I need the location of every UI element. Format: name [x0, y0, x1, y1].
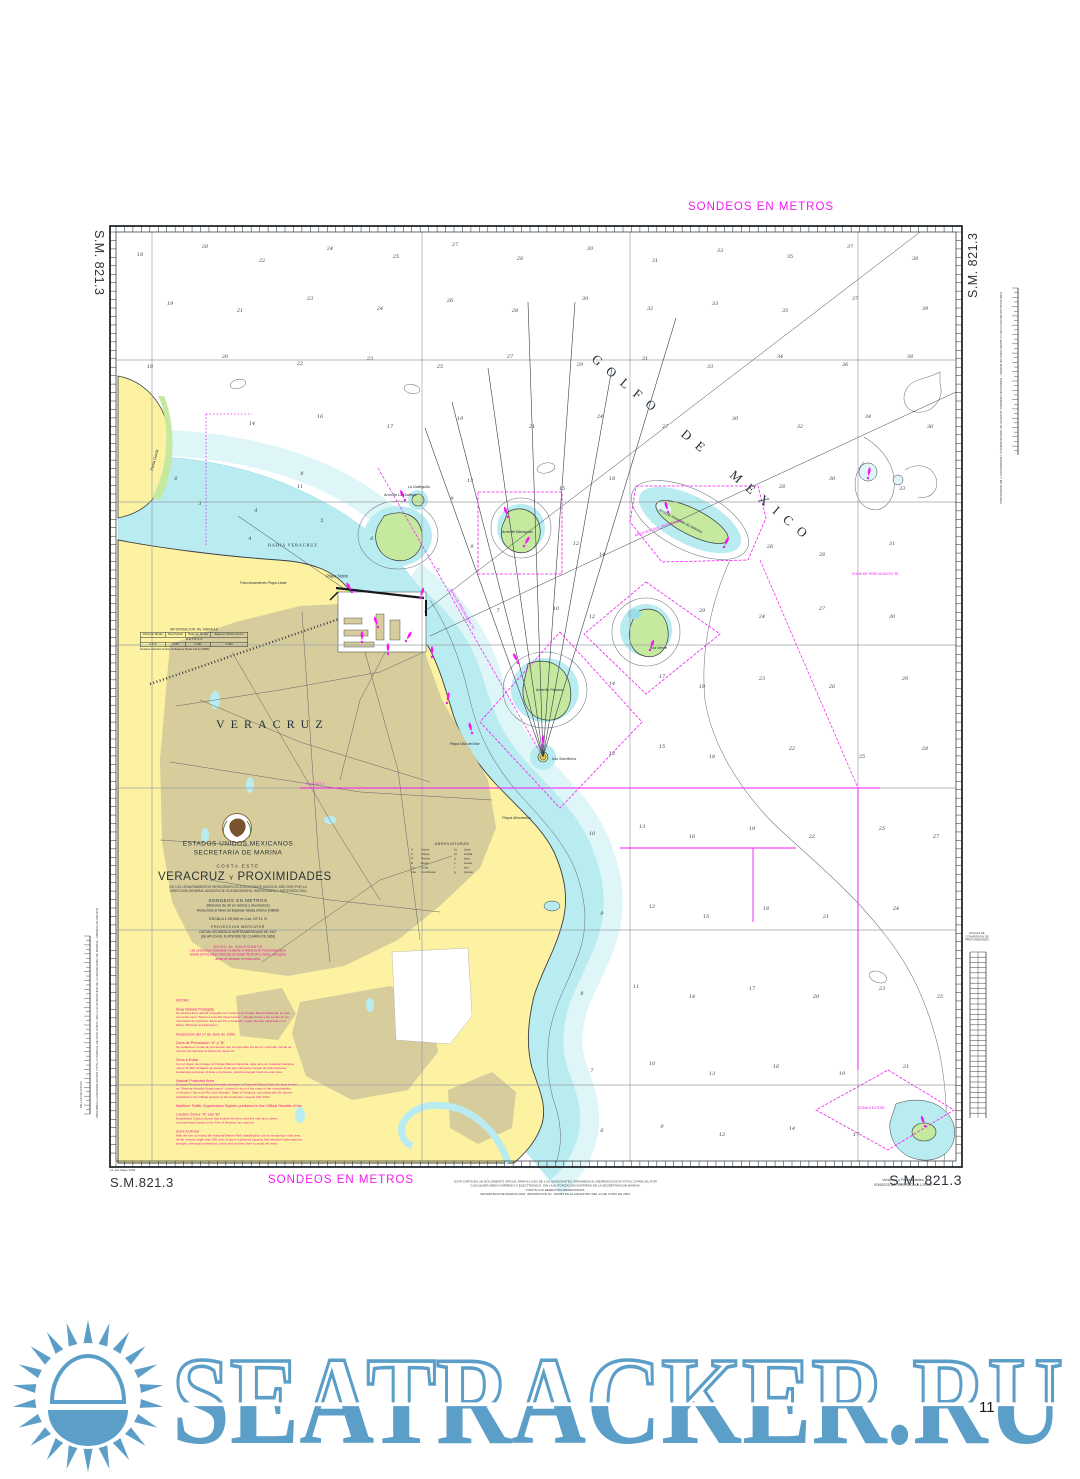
bottom-right-info: Veracruz y Proximidades SONDEOS-METROS E…: [828, 1178, 978, 1187]
title-region: COSTA ESTE: [158, 863, 318, 868]
sounding-value: 25: [878, 826, 885, 832]
sounding-value: 24: [892, 906, 899, 912]
sounding-value: 28: [516, 256, 523, 262]
abbreviations-columns: AArenaFFangoPPiedraRRocaCoCoralCtaConchu…: [411, 848, 493, 875]
map-label: La Galleguilla: [408, 485, 430, 489]
sounding-value: 36: [927, 424, 934, 430]
bottom-right-chart-scale: SONDEOS-METROS ESCALA 1:25,000: [828, 1183, 978, 1187]
sounding-value: 13: [639, 824, 645, 830]
sounding-value: 23: [878, 986, 885, 992]
sounding-value: 14: [789, 1126, 795, 1132]
map-label: S.M. 827.1: [306, 782, 324, 786]
note-heading: Federación del 17 de Julio de 1998.: [176, 1032, 331, 1036]
note-body-line: charges, chemical substances, toxics and…: [176, 1142, 331, 1146]
sounding-value: 16: [317, 414, 324, 420]
sounding-value: 16: [689, 834, 696, 840]
title-source-1: DE LOS LEVANTAMIENTOS HIDROGRAFICOS EJEC…: [158, 885, 318, 889]
map-label: Isla Sacrificios: [552, 757, 576, 761]
chart-page: 1820222425272830313335373819212324262830…: [0, 0, 1080, 1479]
sounding-value: 11: [297, 484, 303, 490]
map-label: ZONA A EVITAR: [858, 1106, 885, 1110]
chart-number-top-left: S.M. 821.3: [92, 230, 106, 295]
map-label: Fraccionamiento Playa Linda: [240, 581, 286, 585]
sounding-value: 15: [703, 914, 709, 920]
sounding-value: 8: [300, 471, 303, 477]
sounding-value: 25: [858, 754, 865, 760]
sounding-value: 32: [647, 306, 653, 312]
latitude-scale-title: MILLAS NAUTICAS: [80, 1018, 83, 1108]
sounding-value: 22: [788, 746, 795, 752]
sounding-value: 30: [829, 476, 836, 482]
sounding-value: 20: [698, 608, 706, 614]
sounding-value: 29: [901, 676, 909, 682]
sounding-value: 35: [787, 254, 793, 260]
abbrev-column: AArenaFFangoPPiedraRRocaCoCoralCtaConchu…: [411, 848, 450, 875]
sounding-value: 35: [782, 308, 788, 314]
harbor: [330, 588, 426, 652]
title-block: ESTADOS UNIDOS MEXICANOS SECRETARIA DE M…: [158, 840, 318, 961]
chart-title-rest: PROXIMIDADES: [237, 870, 331, 883]
map-label: Isla Verde: [650, 646, 667, 650]
sounding-value: 14: [599, 552, 605, 558]
sounding-value: 19: [839, 1071, 846, 1077]
sounding-value: 17: [749, 986, 756, 992]
sounding-value: 29: [576, 362, 584, 368]
map-label: Playa Norte: [326, 574, 348, 578]
tide-value-cell: 0.287: [165, 642, 185, 647]
tide-table: INFORMACION DE MAREAS Pleamar MediaNivel…: [140, 628, 248, 651]
sounding-value: 28: [511, 308, 518, 314]
sounding-value: 3: [198, 501, 201, 507]
title-projection: PROYECCION MERCATOR: [158, 925, 318, 929]
sounding-value: 31: [652, 258, 658, 264]
sounding-value: 21: [528, 424, 535, 430]
sounding-value: 20: [812, 994, 820, 1000]
sounding-value: 20: [201, 244, 209, 250]
sounding-value: 26: [828, 684, 836, 690]
sounding-value: 18: [763, 906, 769, 912]
sounding-value: 14: [249, 421, 255, 427]
note-body-line: recommended routes to the Port of Veracr…: [176, 1121, 331, 1125]
sondeos-title-bottom: SONDEOS EN METROS: [268, 1174, 414, 1187]
sounding-value: 24: [326, 246, 333, 252]
sounding-value: 39: [922, 306, 929, 312]
sounding-value: 32: [797, 424, 803, 430]
sounding-value: 25: [936, 994, 943, 1000]
sounding-value: 19: [749, 826, 756, 832]
right-margin-note: PUBLICADA EN MEXICO POR LA SECRETARIA DE…: [999, 292, 1002, 472]
title-datum-2: (SE APLICA EL ELIPSOIDE DE CLARKE DE 186…: [158, 935, 318, 939]
sounding-value: 33: [899, 486, 905, 492]
sounding-value: 19: [167, 301, 174, 307]
sounding-value: 14: [689, 994, 695, 1000]
sounding-value: 11: [633, 984, 639, 990]
sounding-value: 22: [258, 258, 265, 264]
sounding-value: 27: [818, 606, 826, 612]
sounding-value: 20: [221, 354, 229, 360]
sounding-value: 13: [709, 1071, 715, 1077]
sounding-value: 15: [559, 486, 565, 492]
chart-title-main: VERACRUZ: [158, 870, 225, 883]
title-source-2: DIRECCION GENERAL ADJUNTA DE OCEANOGRAFI…: [158, 890, 318, 894]
map-label: VERACRUZ: [216, 718, 329, 730]
tide-table-title: INFORMACION DE MAREAS: [140, 628, 248, 632]
sounding-value: 24: [596, 414, 603, 420]
map-label: Arrecife Pájaros: [536, 688, 563, 692]
sounding-value: 36: [842, 362, 849, 368]
note-body-line: published in the Official Gazette of the…: [176, 1095, 331, 1099]
sounding-value: 10: [589, 831, 596, 837]
sounding-value: 28: [818, 552, 825, 558]
abbreviations-table: ABREVIATURAS AArenaFFangoPPiedraRRocaCoC…: [411, 842, 493, 875]
sounding-value: 27: [451, 242, 459, 248]
map-label: BAHIA VERACRUZ: [268, 543, 318, 548]
chart-title-conj: Y: [229, 874, 234, 882]
sounding-value: 15: [659, 744, 665, 750]
left-margin-note: PROHIBIDA LA REPRODUCCION TOTAL O PARCIA…: [96, 938, 99, 1118]
sounding-value: 33: [707, 364, 713, 370]
sounding-value: 37: [852, 296, 859, 302]
sounding-value: 17: [659, 674, 666, 680]
sounding-value: 19: [699, 684, 706, 690]
sounding-value: 18: [709, 754, 715, 760]
sounding-value: 12: [719, 1132, 725, 1138]
sounding-value: 17: [853, 1132, 860, 1138]
sounding-value: 22: [808, 834, 815, 840]
sounding-value: 28: [778, 484, 785, 490]
sounding-value: 23: [758, 676, 765, 682]
light-flare-icon: [387, 643, 390, 655]
sounding-value: 13: [467, 478, 473, 484]
title-agency: SECRETARIA DE MARINA: [158, 849, 318, 856]
note-heading: NOTAS:: [176, 999, 331, 1003]
sounding-value: 24: [758, 614, 765, 620]
sounding-value: 30: [732, 416, 739, 422]
note-body-line: sustancias químicas, tóxicas o nucleares…: [176, 1070, 331, 1074]
sounding-value: 21: [236, 308, 243, 314]
map-label: Arrecife Blanquilla: [502, 530, 533, 534]
sounding-value: 14: [609, 681, 615, 687]
map-label: ZONA DE PRECAUCION "B": [852, 572, 899, 576]
coat-of-arms: [223, 814, 252, 843]
title-sondeos: SONDEOS EN METROS: [158, 898, 318, 903]
sounding-value: 31: [889, 541, 895, 547]
sounding-value: 33: [712, 301, 718, 307]
title-sondeos-sub2: Reducidos al Nivel de Bajamar Media Infe…: [158, 909, 318, 913]
note-body-line: norman las derrotas al Puerto de Veracru…: [176, 1049, 331, 1053]
sounding-value: 12: [649, 904, 655, 910]
chart-notes: NOTAS:Área Natural ProtegidaSe declara á…: [176, 994, 331, 1146]
note-heading: Maritime Traffic Organization System pub…: [176, 1104, 331, 1108]
abbrev-row: ggrueso: [454, 870, 493, 875]
chart-number-bottom-left: S.M.821.3: [110, 1176, 174, 1191]
text-line: SECRETARIA DE MARINA 2003. INSCRIPCION N…: [428, 1193, 683, 1197]
abbrev-column: LvLavaArArcilladdurossuaveffinoggrueso: [454, 848, 493, 875]
sounding-value: 22: [296, 361, 303, 367]
nautical-chart-canvas: 1820222425272830313335373819212324262830…: [0, 0, 1080, 1479]
map-label: Playa Mocambo: [502, 816, 531, 820]
tide-value-cell: 0.091: [185, 642, 210, 647]
sounding-value: 28: [921, 746, 928, 752]
abbrev-row: CtaConchuela: [411, 870, 450, 875]
sounding-value: 18: [147, 364, 153, 370]
sounding-value: 21: [822, 914, 829, 920]
page-number: 11: [979, 1399, 995, 1416]
text-line: antes de situarse en esta carta.: [158, 957, 318, 961]
sounding-value: 23: [366, 356, 373, 362]
sounding-value: 10: [649, 1061, 656, 1067]
sounding-value: 24: [376, 306, 383, 312]
sounding-value: 19: [457, 416, 464, 422]
bottom-right-chart-name: Veracruz y Proximidades: [828, 1178, 978, 1182]
title-scale: ESCALA 1:25,000 en Lat. 19°11' N: [158, 917, 318, 921]
sounding-value: 25: [392, 254, 399, 260]
sounding-value: 4: [247, 536, 251, 542]
sounding-value: 33: [717, 248, 723, 254]
sounding-value: 12: [589, 614, 595, 620]
sounding-value: 27: [932, 834, 940, 840]
sondeos-title-top: SONDEOS EN METROS: [688, 201, 834, 214]
sounding-value: 10: [553, 606, 560, 612]
map-label: Arrecife La Gallega: [384, 493, 417, 497]
chart-number-top-right: S.M. 821.3: [966, 233, 980, 298]
sounding-value: 26: [766, 544, 774, 550]
tide-table-grid: Pleamar MediaNivel MedioBajamar MediaBaj…: [140, 632, 248, 647]
sounding-value: 12: [573, 541, 579, 547]
light-flare-icon: [542, 735, 545, 747]
note-body-line: Diario Oficial de la Federación.: [176, 1024, 331, 1028]
tide-value-cell: 0.476: [140, 642, 165, 647]
sounding-value: 30: [582, 296, 589, 302]
sounding-value: 30: [587, 246, 594, 252]
abbreviations-title: ABREVIATURAS: [411, 842, 493, 846]
sounding-value: 31: [642, 356, 648, 362]
sounding-value: 4: [253, 508, 257, 514]
chart-title: VERACRUZ Y PROXIMIDADES: [158, 870, 318, 883]
title-country: ESTADOS UNIDOS MEXICANOS: [158, 840, 318, 847]
sounding-value: 37: [847, 244, 854, 250]
sounding-value: 21: [902, 1064, 909, 1070]
tide-table-footnote: Sondeos referidos al Nivel de Bajamar Me…: [140, 648, 248, 651]
sounding-value: 12: [609, 751, 615, 757]
sounding-value: 18: [609, 476, 615, 482]
seatracker-sun-logo: [13, 1320, 163, 1472]
edition-note: 1a. Ed. Mayo 2003: [110, 1169, 210, 1172]
sounding-value: 34: [865, 414, 871, 420]
sounding-value: 8: [580, 991, 583, 997]
light-flare-icon: [361, 631, 364, 643]
sounding-value: 18: [137, 252, 143, 258]
text-line: PROFUNDIDADES: [956, 939, 998, 942]
sounding-value: 17: [387, 424, 394, 430]
depth-scale-title: ESCALA DECONVERSION DEPROFUNDIDADES: [956, 932, 998, 942]
light-flare-icon: [431, 646, 434, 658]
title-sondeos-sub1: (Menores de 30 en metros y decímetros): [158, 904, 318, 908]
sounding-value: 26: [446, 298, 454, 304]
copyright-block: ESTA CARTA ES UN DOCUMENTO OFICIAL PARA …: [428, 1180, 683, 1197]
sounding-value: 16: [773, 1064, 780, 1070]
title-aviso-body: Las posiciones obtenidas mediante el Sis…: [158, 949, 318, 961]
sounding-value: 38: [912, 256, 918, 262]
tide-value-cell: 0.000: [211, 642, 248, 647]
sounding-value: 38: [907, 354, 913, 360]
sounding-value: 34: [777, 354, 783, 360]
sounding-value: 27: [506, 354, 514, 360]
sounding-value: 25: [436, 364, 443, 370]
title-datum-1: DATUM GEODESICO NORTEAMERICANO DE 1927: [158, 930, 318, 934]
sounding-value: 5: [320, 518, 323, 524]
sounding-value: 23: [306, 296, 313, 302]
map-label: Playa Villa del Mar: [450, 742, 480, 746]
sounding-value: 30: [889, 614, 896, 620]
